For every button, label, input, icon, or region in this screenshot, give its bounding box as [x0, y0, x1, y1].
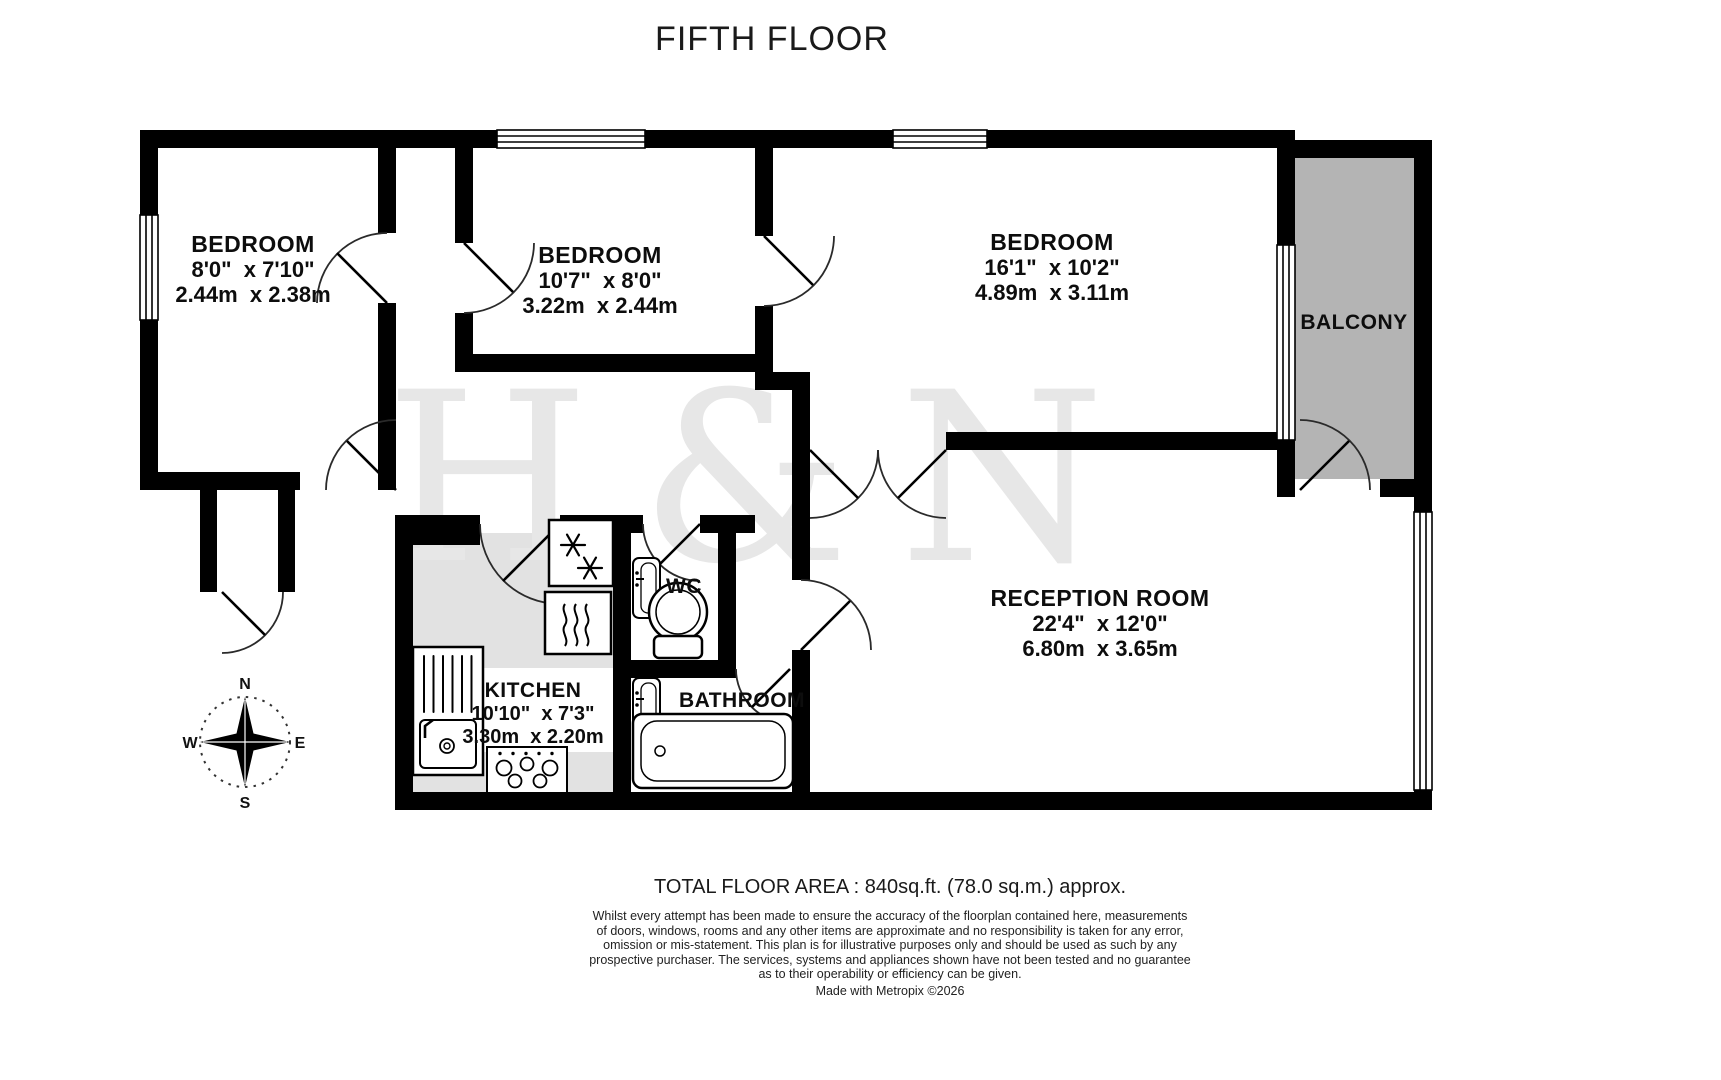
- compass-rose: N E S W: [182, 676, 305, 812]
- metropix-credit: Made with Metropix ©2026: [440, 984, 1340, 999]
- window-bedroom1-left: [140, 215, 158, 320]
- total-floor-area: TOTAL FLOOR AREA : 840sq.ft. (78.0 sq.m.…: [440, 876, 1340, 899]
- disclaimer-line: as to their operability or efficiency ca…: [440, 967, 1340, 982]
- room-size-imperial: 22'4" x 12'0": [990, 611, 1209, 636]
- window-reception-right: [1414, 512, 1432, 790]
- room-size-metric: 4.89m x 3.11m: [975, 280, 1129, 305]
- compass-north-label: N: [239, 676, 251, 693]
- compass-south-label: S: [240, 795, 251, 812]
- disclaimer-line: Whilst every attempt has been made to en…: [440, 909, 1340, 924]
- room-size-metric: 3.30m x 2.20m: [462, 726, 603, 749]
- disclaimer: Whilst every attempt has been made to en…: [440, 909, 1340, 982]
- compass-east-label: E: [295, 735, 306, 752]
- disclaimer-line: omission or mis-statement. This plan is …: [440, 938, 1340, 953]
- room-label-balcony: BALCONY: [1300, 310, 1407, 335]
- room-name: RECEPTION ROOM: [990, 586, 1209, 611]
- fridge-freezer-icon: [549, 520, 613, 586]
- room-label-wc: WC: [666, 574, 702, 599]
- room-size-imperial: 16'1" x 10'2": [975, 255, 1129, 280]
- oven-icon: [545, 592, 611, 654]
- room-size-metric: 3.22m x 2.44m: [522, 293, 677, 318]
- disclaimer-line: prospective purchaser. The services, sys…: [440, 953, 1340, 968]
- room-size-metric: 2.44m x 2.38m: [175, 282, 330, 307]
- room-name: BALCONY: [1300, 310, 1407, 335]
- room-size-metric: 6.80m x 3.65m: [990, 636, 1209, 661]
- room-name: BEDROOM: [175, 232, 330, 257]
- door-entrance: [222, 592, 283, 653]
- room-label-bathroom: BATHROOM: [679, 688, 805, 713]
- room-name: WC: [666, 574, 702, 599]
- room-name: BEDROOM: [975, 230, 1129, 255]
- footer: TOTAL FLOOR AREA : 840sq.ft. (78.0 sq.m.…: [440, 876, 1340, 998]
- room-size-imperial: 10'7" x 8'0": [522, 268, 677, 293]
- room-label-reception: RECEPTION ROOM 22'4" x 12'0" 6.80m x 3.6…: [990, 586, 1209, 661]
- room-size-imperial: 10'10" x 7'3": [462, 703, 603, 726]
- room-label-bedroom-3: BEDROOM 16'1" x 10'2" 4.89m x 3.11m: [975, 230, 1129, 305]
- room-name: BEDROOM: [522, 243, 677, 268]
- bathtub-icon: [633, 714, 793, 788]
- room-label-kitchen: KITCHEN 10'10" x 7'3" 3.30m x 2.20m: [462, 678, 603, 749]
- door-bedroom3: [764, 236, 834, 306]
- room-label-bedroom-1: BEDROOM 8'0" x 7'10" 2.44m x 2.38m: [175, 232, 330, 307]
- room-size-imperial: 8'0" x 7'10": [175, 257, 330, 282]
- window-balcony-door: [1277, 245, 1295, 440]
- room-name: KITCHEN: [462, 678, 603, 703]
- room-name: BATHROOM: [679, 688, 805, 713]
- compass-west-label: W: [182, 735, 198, 752]
- hob-icon: [487, 747, 567, 793]
- disclaimer-line: of doors, windows, rooms and any other i…: [440, 924, 1340, 939]
- window-bedroom2-top: [497, 130, 645, 148]
- room-label-bedroom-2: BEDROOM 10'7" x 8'0" 3.22m x 2.44m: [522, 243, 677, 318]
- window-bedroom3-top: [893, 130, 987, 148]
